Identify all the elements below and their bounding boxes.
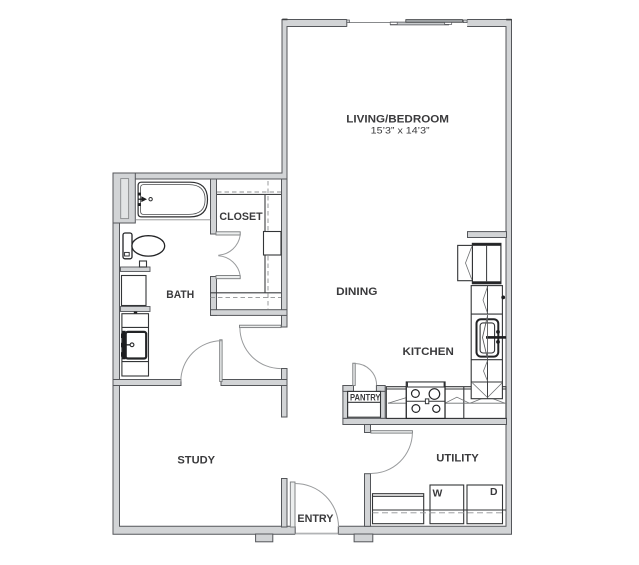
svg-text:LIVING/BEDROOM: LIVING/BEDROOM <box>346 113 449 125</box>
svg-text:CLOSET: CLOSET <box>219 211 262 223</box>
svg-text:ENTRY: ENTRY <box>297 513 334 525</box>
svg-text:STUDY: STUDY <box>177 455 215 467</box>
svg-text:BATH: BATH <box>166 289 194 301</box>
svg-text:15’3” x 14’3”: 15’3” x 14’3” <box>371 125 430 135</box>
svg-text:D: D <box>490 487 498 498</box>
svg-text:DINING: DINING <box>336 286 378 298</box>
svg-text:PANTRY: PANTRY <box>350 393 381 403</box>
svg-text:KITCHEN: KITCHEN <box>403 346 454 358</box>
svg-text:UTILITY: UTILITY <box>436 452 479 464</box>
svg-text:W: W <box>433 488 443 499</box>
